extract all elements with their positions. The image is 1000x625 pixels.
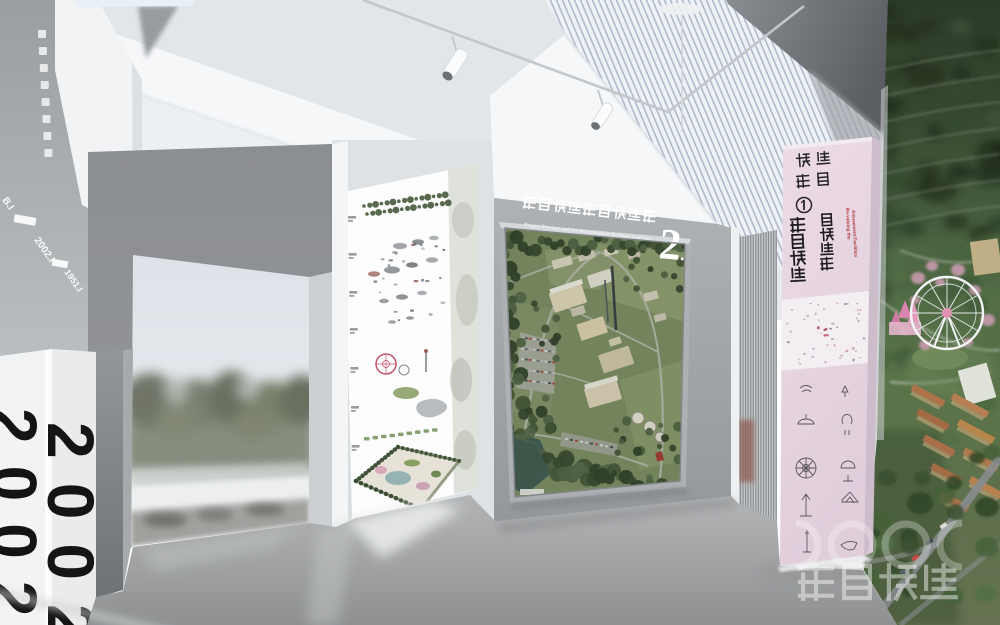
svg-text:2002: 2002 xyxy=(34,422,108,625)
